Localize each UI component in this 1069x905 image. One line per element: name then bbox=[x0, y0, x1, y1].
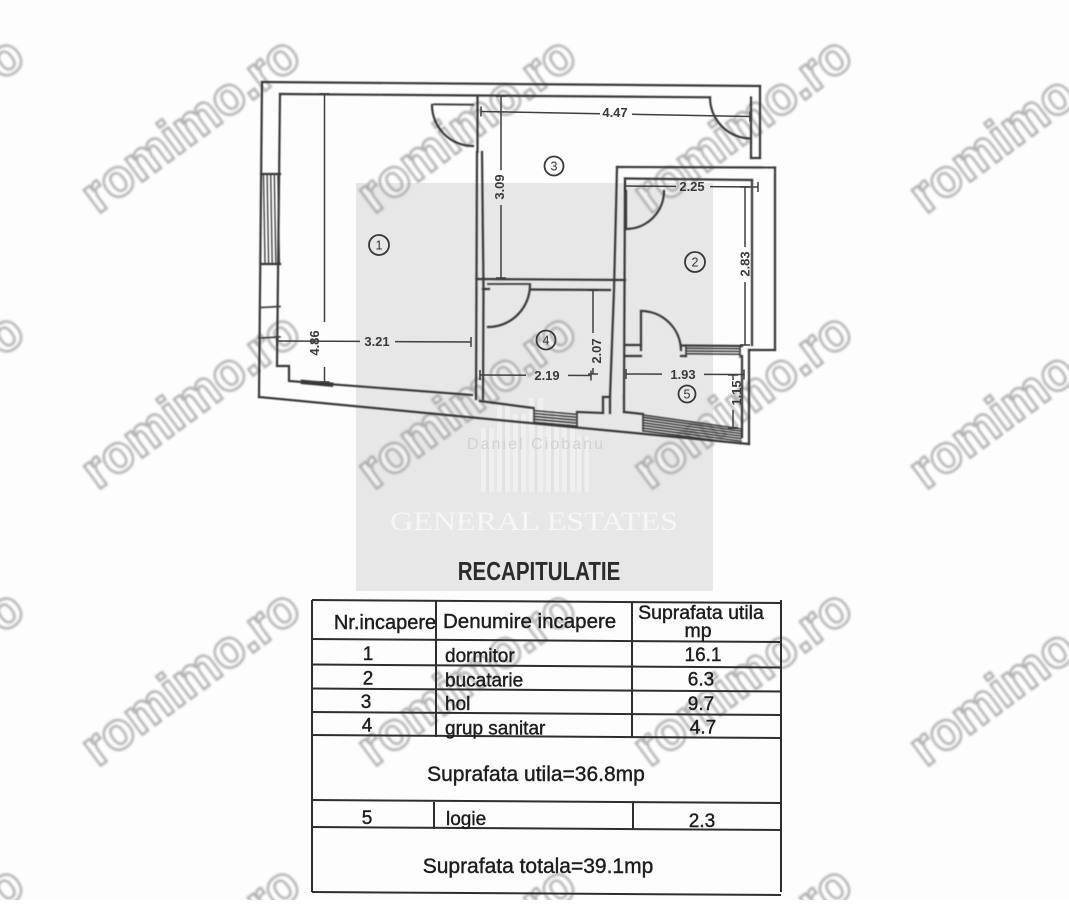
svg-text:1.15: 1.15 bbox=[729, 380, 744, 405]
svg-text:dormitor: dormitor bbox=[445, 646, 515, 667]
svg-text:mp: mp bbox=[684, 620, 711, 642]
svg-text:bucatarie: bucatarie bbox=[445, 671, 523, 692]
svg-text:2.07: 2.07 bbox=[589, 338, 604, 363]
svg-text:Daniel Ciobanu: Daniel Ciobanu bbox=[467, 436, 603, 453]
svg-text:Suprafata totala=39.1mp: Suprafata totala=39.1mp bbox=[423, 855, 654, 878]
svg-text:2: 2 bbox=[692, 256, 699, 270]
svg-text:GENERAL ESTATES: GENERAL ESTATES bbox=[390, 507, 678, 536]
svg-text:4.47: 4.47 bbox=[602, 105, 627, 120]
svg-text:grup sanitar: grup sanitar bbox=[445, 719, 546, 740]
svg-text:RECAPITULATIE: RECAPITULATIE bbox=[458, 557, 621, 586]
svg-text:4.7: 4.7 bbox=[690, 718, 716, 739]
svg-text:5: 5 bbox=[362, 808, 373, 829]
svg-text:1: 1 bbox=[363, 644, 374, 665]
svg-text:3: 3 bbox=[361, 692, 372, 713]
svg-text:logie: logie bbox=[446, 809, 486, 830]
svg-text:2: 2 bbox=[363, 669, 374, 690]
svg-text:5: 5 bbox=[684, 388, 691, 402]
svg-text:2.25: 2.25 bbox=[679, 179, 704, 194]
svg-text:3.09: 3.09 bbox=[492, 174, 507, 199]
svg-text:6.3: 6.3 bbox=[688, 670, 714, 691]
svg-text:4.86: 4.86 bbox=[307, 330, 322, 355]
svg-text:3.21: 3.21 bbox=[364, 334, 389, 349]
svg-text:2.19: 2.19 bbox=[534, 368, 559, 383]
svg-text:4: 4 bbox=[362, 716, 373, 737]
svg-text:Suprafata utila=36.8mp: Suprafata utila=36.8mp bbox=[427, 763, 645, 786]
svg-text:16.1: 16.1 bbox=[685, 645, 722, 666]
svg-text:4: 4 bbox=[543, 334, 550, 348]
svg-text:2.3: 2.3 bbox=[689, 811, 715, 832]
svg-text:1: 1 bbox=[376, 239, 383, 253]
svg-text:Denumire incapere: Denumire incapere bbox=[443, 610, 616, 633]
svg-text:hol: hol bbox=[445, 694, 470, 715]
svg-text:Nr.incapere: Nr.incapere bbox=[334, 612, 436, 634]
svg-text:3: 3 bbox=[551, 160, 558, 174]
svg-text:1.93: 1.93 bbox=[670, 367, 695, 382]
svg-text:9.7: 9.7 bbox=[688, 694, 714, 715]
svg-text:2.83: 2.83 bbox=[738, 251, 753, 276]
